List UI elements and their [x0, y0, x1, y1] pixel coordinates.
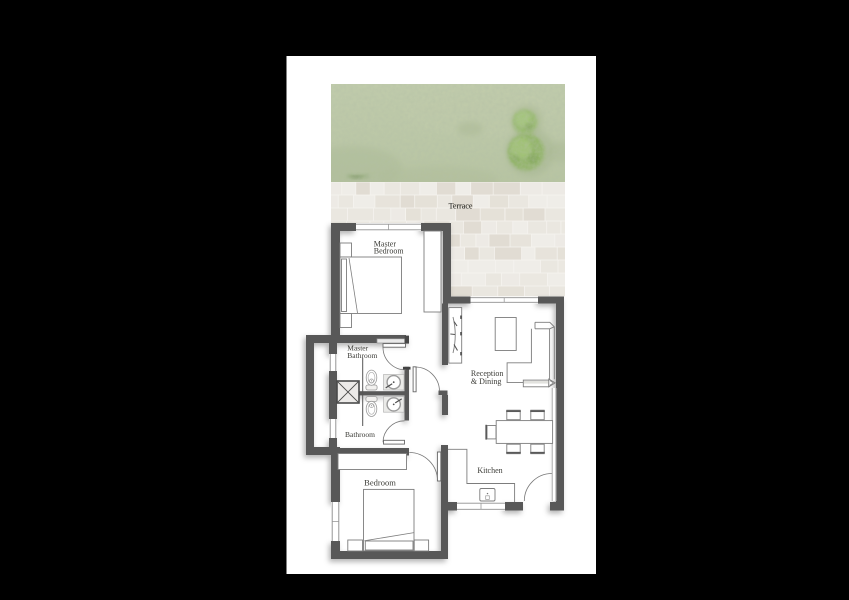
svg-text:& Dining: & Dining [471, 377, 501, 386]
svg-text:Terrace: Terrace [449, 202, 473, 211]
svg-text:Kitchen: Kitchen [477, 466, 502, 475]
svg-text:Bathroom: Bathroom [347, 351, 377, 360]
svg-text:Bathroom: Bathroom [345, 430, 375, 439]
svg-text:Bedroom: Bedroom [374, 247, 405, 256]
svg-text:Bedroom: Bedroom [364, 477, 396, 487]
